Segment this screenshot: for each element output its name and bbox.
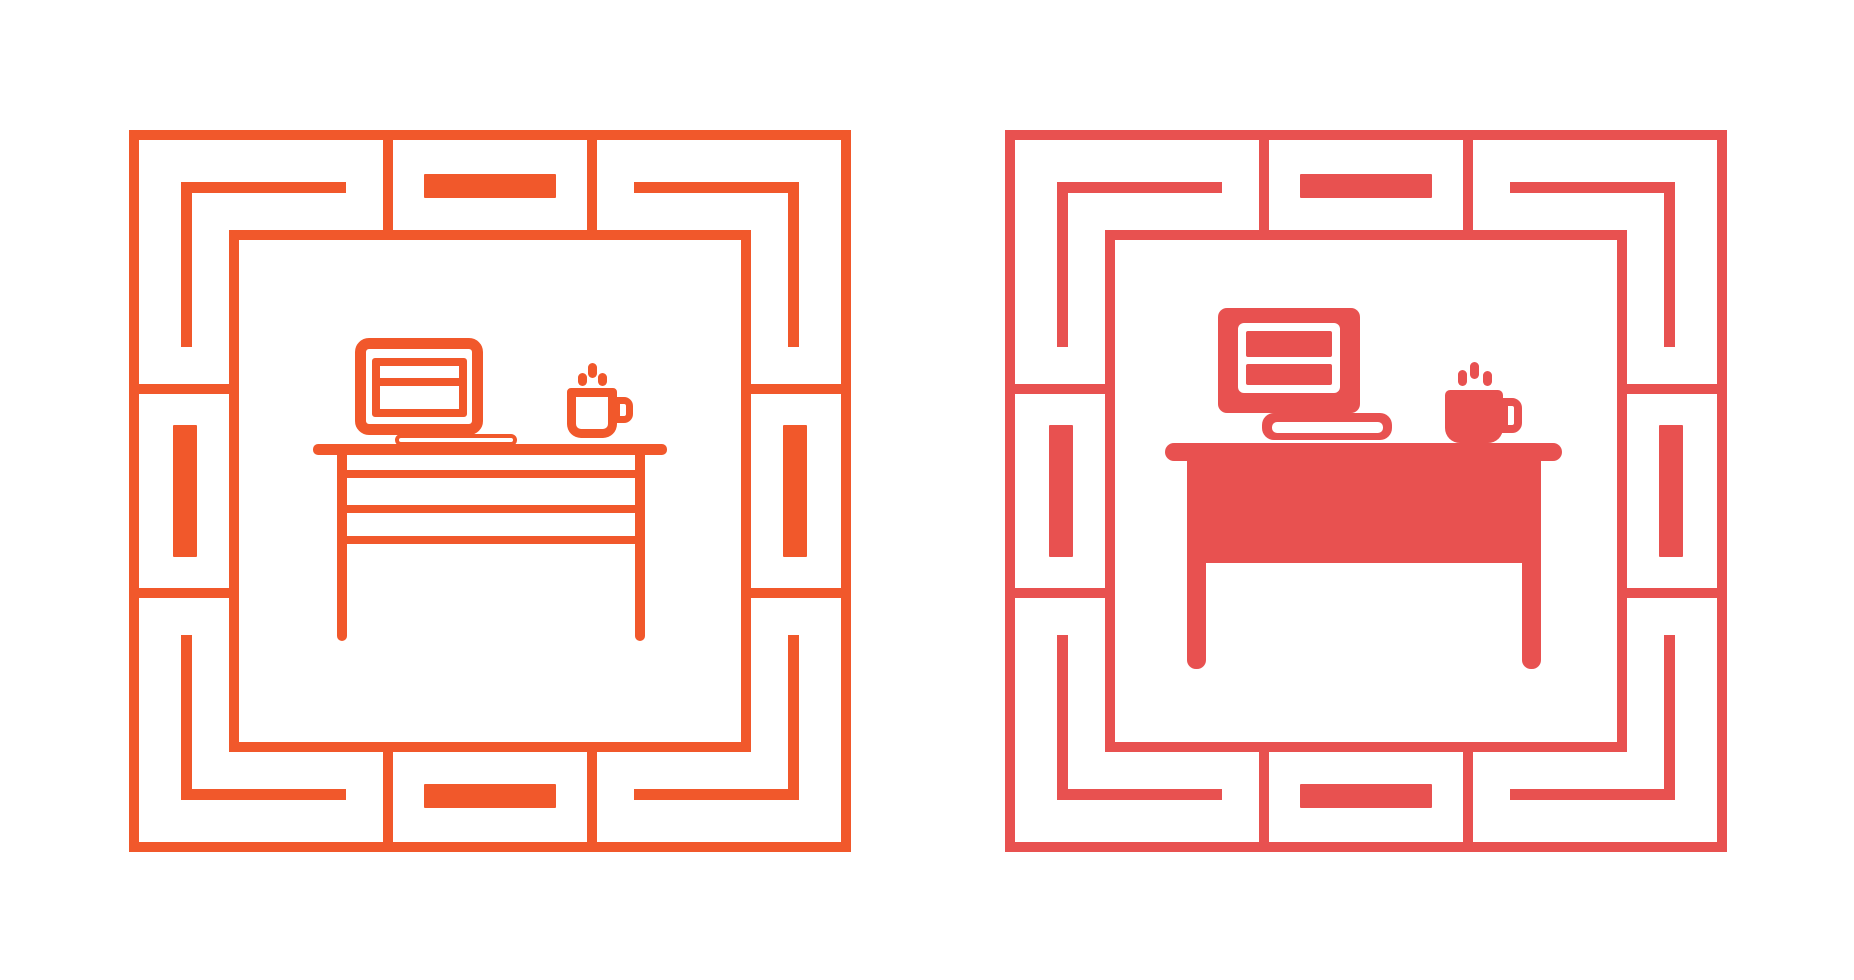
screen-divider-line — [380, 378, 459, 386]
corner-bracket-icon — [634, 635, 799, 800]
frame-divider — [1627, 384, 1717, 394]
laptop-screen — [372, 358, 467, 417]
screen-content-bar — [1246, 364, 1332, 385]
desk-rail — [342, 470, 640, 478]
desk-tabletop — [1165, 443, 1562, 461]
edge-bar — [1049, 425, 1073, 557]
monitor-screen — [1238, 323, 1340, 393]
edge-bar — [424, 784, 556, 808]
steam-icon — [1483, 371, 1492, 386]
coffee-cup-icon — [1445, 390, 1503, 443]
steam-icon — [578, 373, 587, 386]
desk-leg — [1187, 461, 1206, 669]
steam-icon — [598, 373, 607, 386]
corner-bracket-icon — [181, 182, 346, 347]
edge-bar — [783, 425, 807, 557]
frame-divider — [383, 752, 393, 842]
desk-rail — [342, 536, 640, 544]
frame-divider — [1463, 140, 1473, 230]
edge-bar — [1300, 174, 1432, 198]
icon-sheet — [0, 0, 1854, 980]
frame-divider — [383, 140, 393, 230]
desk-leg — [1522, 461, 1541, 669]
edge-bar — [424, 174, 556, 198]
frame-divider — [587, 752, 597, 842]
book-icon — [1262, 413, 1392, 440]
frame-divider — [1259, 140, 1269, 230]
frame-divider — [751, 588, 841, 598]
corner-bracket-icon — [634, 182, 799, 347]
desk-leg — [337, 450, 347, 641]
workspace-outline-icon — [129, 130, 851, 852]
edge-bar — [1300, 784, 1432, 808]
steam-icon — [1458, 370, 1467, 386]
coffee-cup-icon — [567, 388, 617, 438]
frame-divider — [1627, 588, 1717, 598]
frame-divider — [1259, 752, 1269, 842]
corner-bracket-icon — [181, 635, 346, 800]
frame-divider — [751, 384, 841, 394]
steam-icon — [588, 363, 597, 378]
frame-divider — [139, 384, 229, 394]
corner-bracket-icon — [1510, 182, 1675, 347]
workspace-glyph-icon — [1005, 130, 1727, 852]
edge-bar — [173, 425, 197, 557]
edge-bar — [1659, 425, 1683, 557]
frame-divider — [139, 588, 229, 598]
book-pages — [1272, 422, 1383, 433]
desk-body — [1187, 461, 1541, 563]
frame-divider — [1015, 588, 1105, 598]
cup-handle — [1500, 398, 1522, 433]
screen-content-bar — [1246, 331, 1332, 357]
frame-divider — [1015, 384, 1105, 394]
steam-icon — [1470, 362, 1479, 379]
frame-divider — [1463, 752, 1473, 842]
laptop-base — [395, 434, 517, 446]
desk-rail — [342, 505, 640, 513]
frame-divider — [587, 140, 597, 230]
corner-bracket-icon — [1057, 182, 1222, 347]
desk-leg — [635, 450, 645, 641]
